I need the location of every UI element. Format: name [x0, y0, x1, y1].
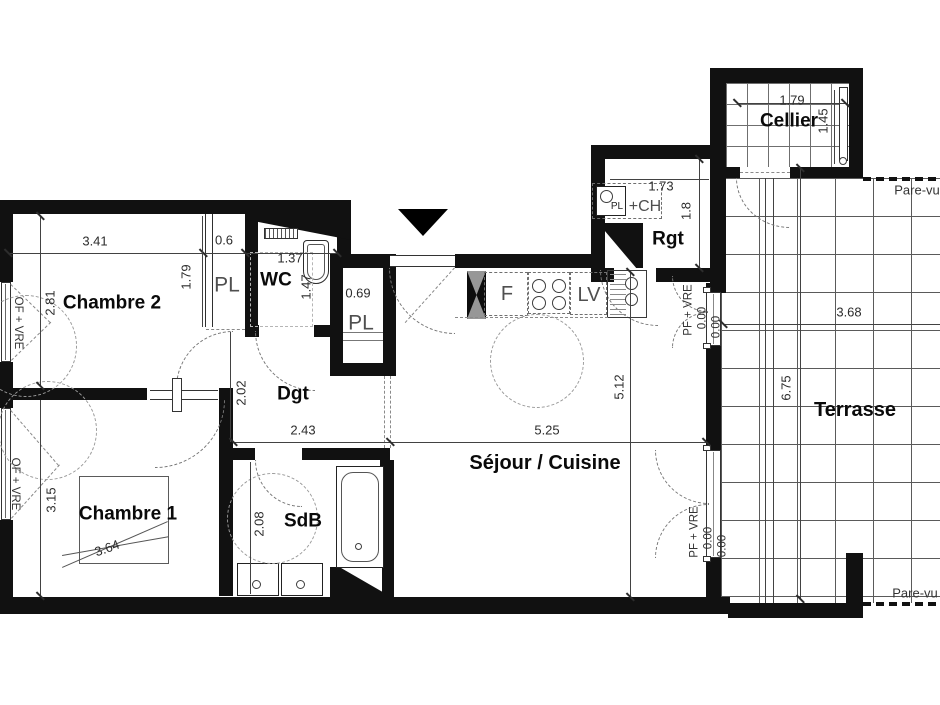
- dim-line-cellier-h: [834, 90, 835, 164]
- sink-bowl-1: [625, 277, 638, 290]
- plmid-shelf-line-2: [343, 340, 383, 341]
- bathtub-drain: [355, 543, 362, 550]
- room-label-terrasse: Terrasse: [814, 400, 896, 420]
- burner-icon-2: [552, 279, 566, 293]
- annotation-chambre2-window: OF + VRE: [11, 297, 23, 350]
- wall-plmid-left: [330, 254, 343, 376]
- dim-dgt-w: 2.43: [290, 424, 315, 437]
- dgt-sejour-dash-2: [390, 376, 391, 448]
- wall-sdb-top-left: [233, 448, 255, 460]
- vanity-drain-2: [296, 580, 305, 589]
- wall-sdb-top-right: [302, 448, 390, 460]
- terrace-joint-line-2: [773, 178, 774, 603]
- dim-sdb-h: 2.08: [253, 511, 266, 536]
- chambre1-door-leaf: [172, 378, 182, 412]
- dim-wc-d: 1.47: [300, 274, 313, 299]
- dim-line-pl-depth: [202, 216, 203, 327]
- dim-pl-top-w: 0.6: [215, 234, 233, 247]
- terrace-door-lower-hinge-2: [703, 556, 711, 562]
- wall-cellier-left: [710, 68, 726, 293]
- chambre1-door-arc: [155, 400, 225, 468]
- cellier-window: [839, 87, 848, 161]
- terrace-joint-line-1: [765, 178, 766, 603]
- dim-rgt-h: 1.8: [680, 202, 693, 220]
- pare-vue-label-top: Pare-vu: [894, 184, 940, 197]
- wc-grille: [264, 228, 298, 239]
- wall-terrace-stub: [846, 553, 863, 618]
- dim-dgt-h: 2.02: [235, 380, 248, 405]
- terrace-door-lower-arc-1: [655, 450, 709, 504]
- dim-terrasse-w: 3.68: [836, 306, 861, 319]
- fixture-label-fridge: F: [501, 284, 513, 304]
- boiler-label: PL: [611, 202, 623, 212]
- dim-line-dgt-h: [230, 332, 231, 442]
- chambre2-door-arc: [176, 331, 233, 388]
- wall-left-a: [0, 200, 13, 282]
- room-label-sejour: Séjour / Cuisine: [469, 453, 620, 473]
- wall-left-c: [0, 520, 13, 614]
- room-label-dgt: Dgt: [277, 385, 309, 404]
- pare-vue-label-bottom: Pare-vu: [892, 587, 938, 600]
- room-label-chambre1: Chambre 1: [79, 505, 177, 524]
- annotation-terrace-door-upper: PF + VRE: [683, 284, 695, 335]
- dim-line-terrasse-h: [800, 168, 801, 600]
- dim-terrasse-h: 6.75: [780, 375, 793, 400]
- dim-line-sejour-h: [630, 272, 631, 597]
- room-label-pl-top: PL: [214, 275, 240, 296]
- dim-chambre2-w: 3.41: [82, 235, 107, 248]
- boiler-suffix-label: +CH: [629, 199, 661, 215]
- room-label-cellier: Cellier: [760, 112, 818, 131]
- entrance-arrow-icon: [398, 209, 448, 236]
- dim-line-chambre2-h: [40, 216, 41, 386]
- cellier-window-handle: [839, 157, 847, 165]
- room-label-wc: WC: [260, 271, 292, 290]
- room-label-sdb: SdB: [284, 512, 322, 531]
- wc-door-arc: [255, 331, 315, 391]
- terrace-door-upper-hinge-1: [703, 287, 711, 293]
- wall-top-left: [0, 200, 351, 214]
- vanity-drain-1: [252, 580, 261, 589]
- level-lower-b: 0.00: [717, 535, 729, 557]
- wall-cellier-right: [849, 68, 863, 178]
- fixture-label-dishwasher: LV: [578, 285, 601, 305]
- terrace-door-upper-hinge-2: [703, 343, 711, 349]
- cellier-door-threshold: [740, 172, 790, 173]
- floor-plan-canvas: PL +CH Chambre 2 Chambre 1 WC Dgt SdB Sé…: [0, 0, 940, 705]
- pl-top-door-dash: [206, 329, 245, 330]
- dining-table-outline: [490, 314, 584, 408]
- level-lower-a: 0.00: [703, 527, 715, 549]
- pare-vue-dash-top: [863, 177, 940, 181]
- wall-entry-right: [455, 254, 605, 268]
- wall-wc-slope: [247, 214, 351, 240]
- pl-top-partition: [205, 214, 213, 327]
- wall-bottom-right: [728, 603, 863, 618]
- dim-line-dgt-sejour-w: [233, 442, 706, 443]
- terrace-door-lower-arc-2: [655, 504, 709, 558]
- dim-line-terrasse-w: [723, 324, 940, 325]
- wall-plmid-bottom: [330, 363, 396, 376]
- chambre1-sliding-door: [150, 390, 218, 400]
- dim-cellier-h: 1.45: [817, 108, 830, 133]
- entrance-door-frame: [390, 255, 455, 267]
- annotation-chambre1-window: OF + VRE: [8, 458, 20, 511]
- level-upper-b: 0.00: [711, 316, 723, 338]
- wall-bottom-main: [0, 597, 730, 614]
- dim-chambre1-h: 3.15: [45, 487, 58, 512]
- pare-vue-dash-bottom: [863, 602, 940, 606]
- dim-sejour-w: 5.25: [534, 424, 559, 437]
- dim-pl-top-d: 1.79: [180, 264, 193, 289]
- room-label-rgt: Rgt: [652, 230, 684, 249]
- dim-chambre2-h: 2.81: [44, 290, 57, 315]
- terrace-tile-floor: [721, 178, 940, 603]
- wall-cellier-bottom-left: [710, 167, 740, 178]
- dim-rgt-w: 1.73: [648, 180, 673, 193]
- dim-wc-w: 1.37: [277, 252, 302, 265]
- wall-sejour-right-b: [706, 346, 721, 450]
- level-upper-a: 0.00: [697, 307, 709, 329]
- dim-line-chambre1-h: [40, 400, 41, 596]
- dim-line-rgt-h: [699, 159, 700, 268]
- dim-sejour-h: 5.12: [613, 374, 626, 399]
- burner-icon-1: [532, 279, 546, 293]
- dim-cellier-w: 1.79: [779, 94, 804, 107]
- room-label-pl-mid: PL: [348, 313, 374, 334]
- room-label-chambre2: Chambre 2: [63, 294, 161, 313]
- sink-bowl-2: [625, 293, 638, 306]
- dgt-sejour-dash-1: [384, 376, 385, 448]
- wall-cellier-top: [710, 68, 863, 83]
- annotation-terrace-door-lower: PF + VRE: [689, 506, 701, 557]
- dim-pl-mid-w: 0.69: [345, 287, 370, 300]
- burner-icon-4: [552, 296, 566, 310]
- burner-icon-3: [532, 296, 546, 310]
